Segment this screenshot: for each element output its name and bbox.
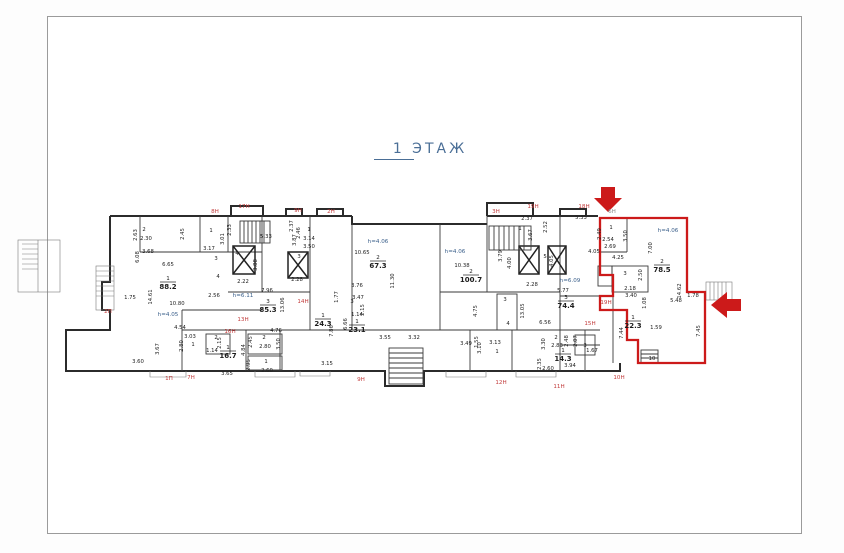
dimension-label: 2.95 <box>246 359 252 371</box>
dimension-label: 4.76 <box>270 328 282 334</box>
svg-text:100.7: 100.7 <box>460 276 482 284</box>
dimension-label: 2.45 <box>180 228 186 240</box>
dimension-label: 5.77 <box>557 288 569 294</box>
dimension-label: 3.76 <box>351 283 363 289</box>
dimension-label: 2.50 <box>638 268 644 280</box>
svg-text:1: 1 <box>355 319 359 325</box>
dimension-label: 3.15 <box>321 361 333 367</box>
dimension-label: 2.35 <box>537 358 543 370</box>
dimension-label: 2.60 <box>542 366 554 372</box>
dimension-label: 2.48 <box>564 334 570 346</box>
dimension-label: 1.75 <box>124 295 136 301</box>
svg-text:16.7: 16.7 <box>219 352 236 360</box>
svg-text:22.3: 22.3 <box>624 322 641 330</box>
unit-number-label: 13Н <box>237 317 248 323</box>
dimension-label: 5.48 <box>670 298 682 304</box>
ceiling-height-label: h=4.06 <box>368 239 389 245</box>
ceiling-height-label: h=4.05 <box>158 312 179 318</box>
dimension-label: 1 <box>264 359 267 365</box>
dimension-label: 6.08 <box>135 250 141 262</box>
dimension-label: 2.54 <box>602 237 614 243</box>
left-arrow-icon <box>711 292 741 318</box>
dimension-label: 3.67 <box>155 343 161 355</box>
svg-text:23.1: 23.1 <box>348 326 365 334</box>
dimension-label: 4.25 <box>612 255 624 261</box>
dimension-label: 3.10 <box>477 341 483 353</box>
dimension-label: 3 <box>623 271 626 277</box>
dimension-label: 3.32 <box>408 335 420 341</box>
room-area-label: 2100.7 <box>460 269 482 284</box>
room-area-label: 123.1 <box>348 319 365 334</box>
dimension-label: 1 <box>495 349 498 355</box>
dimension-label: 7.45 <box>696 325 702 337</box>
dimension-label: 1.67 <box>586 348 598 354</box>
dimension-label: 4.05 <box>549 255 555 267</box>
dimension-label: 2.33 <box>227 224 233 236</box>
dimension-label: 4.75 <box>473 305 479 317</box>
dimension-label: 2.45 <box>248 336 254 348</box>
dimension-label: 1 <box>191 342 194 348</box>
dimension-label: 2.80 <box>179 339 185 351</box>
unit-number-label: 19Н <box>600 300 611 306</box>
unit-number-label: 9Н <box>294 208 302 214</box>
unit-number-label: 17Н <box>238 204 249 210</box>
dimension-label: 2.60 <box>261 368 273 374</box>
dimension-label: 3.03 <box>184 334 196 340</box>
dimension-label: 5.33 <box>260 234 272 240</box>
highlighted-unit-outline <box>600 218 705 363</box>
dimension-label: 11.30 <box>390 273 396 289</box>
unit-number-label: 11Н <box>553 384 564 390</box>
unit-number-label: 18Н <box>578 204 589 210</box>
svg-text:74.4: 74.4 <box>557 302 574 310</box>
dimension-label: 3.87 <box>292 234 298 246</box>
dimension-label: 3.17 <box>203 246 215 252</box>
dimension-label: 4.54 <box>174 325 186 331</box>
dimension-label: 3.55 <box>379 335 391 341</box>
svg-text:24.3: 24.3 <box>314 320 331 328</box>
unit-number-label: 19Н <box>527 204 538 210</box>
dimension-label: 4.00 <box>507 256 513 268</box>
dimension-label: 2.07 <box>573 335 579 347</box>
dimension-label: 10.80 <box>169 301 185 307</box>
room-area-label: 124.3 <box>314 313 331 328</box>
svg-text:88.2: 88.2 <box>159 283 176 291</box>
dimension-label: 1 <box>609 225 612 231</box>
dimension-label: 2.37 <box>521 216 533 222</box>
dimension-label: 13.06 <box>280 297 286 313</box>
unit-number-label: 12Н <box>495 380 506 386</box>
unit-number-label: 7Н <box>187 375 195 381</box>
ceiling-height-label: h=4.06 <box>445 249 466 255</box>
unit-number-label: 6Н <box>608 209 616 215</box>
dimension-label: 1.59 <box>650 325 662 331</box>
svg-text:2: 2 <box>376 255 380 261</box>
floor-plan: 8Н17Н9Н2Н3Н19Н18Н6Н1П7Н9Н12Н11Н10Н2П13Н1… <box>0 0 844 553</box>
elevator-shaft-icons <box>233 246 566 278</box>
dimension-label: 3 <box>297 254 300 260</box>
dimension-label: 2 <box>142 227 145 233</box>
dimension-label: 1.08 <box>642 296 648 308</box>
unit-number-label: 9Н <box>357 377 365 383</box>
dimension-label: 10 <box>649 356 656 362</box>
unit-number-label: 8Н <box>211 209 219 215</box>
dimension-label: 1.78 <box>687 293 699 299</box>
dimension-label: 3.88 <box>253 258 259 270</box>
dimension-label: 3 <box>214 256 217 262</box>
unit-number-label: 16Н <box>224 329 235 335</box>
dimension-label: 4 <box>506 321 510 327</box>
dimension-label: 3.50 <box>303 244 315 250</box>
unit-number-label: 2Н <box>327 209 335 215</box>
dimension-label: 3.30 <box>541 337 547 349</box>
dimension-label: 3.50 <box>276 337 282 349</box>
dimension-label: 2.69 <box>604 244 616 250</box>
scanned-sheet: 1 ЭТАЖ <box>0 0 844 553</box>
dimension-label: 4.84 <box>241 343 247 355</box>
dimension-label: 3.47 <box>352 295 364 301</box>
dimension-label: 3.67 <box>528 229 534 241</box>
dimension-label: 7.96 <box>261 288 273 294</box>
dimension-label: 2.28 <box>291 277 303 283</box>
ceiling-height-label: h=4.06 <box>658 228 679 234</box>
dimension-label: 3.68 <box>142 249 154 255</box>
dimension-label: 1 <box>209 228 212 234</box>
dimension-label: 1 <box>307 227 310 233</box>
svg-text:67.3: 67.3 <box>369 262 386 270</box>
external-structures <box>18 240 732 377</box>
dimension-label: 2.52 <box>543 221 549 233</box>
room-area-label: 385.3 <box>259 299 276 314</box>
dimension-label: 10.65 <box>354 250 369 256</box>
ceiling-height-label: h=6.09 <box>560 278 581 284</box>
svg-text:1: 1 <box>561 348 565 354</box>
dimension-label: 7.00 <box>648 241 654 253</box>
svg-text:85.3: 85.3 <box>259 306 276 314</box>
svg-text:14.3: 14.3 <box>554 355 571 363</box>
dimension-label: 2 <box>262 335 265 341</box>
room-area-label: 267.3 <box>369 255 386 270</box>
dimension-label: 3 <box>503 297 506 303</box>
dimension-label: 3.50 <box>623 229 629 241</box>
dimension-label: 3 <box>350 299 353 305</box>
dimension-label: 2.63 <box>133 229 139 241</box>
room-area-label: 188.2 <box>159 276 176 291</box>
dimension-label: 1.14 <box>206 348 218 354</box>
svg-text:2: 2 <box>469 269 473 275</box>
dimension-label: 3.65 <box>221 371 233 377</box>
dimension-label: 4 <box>216 274 220 280</box>
dimension-label: 5 <box>543 254 546 260</box>
ceiling-height-label: h=6.11 <box>233 293 254 299</box>
unit-number-label: 15Н <box>584 321 595 327</box>
dimension-label: 1.77 <box>334 291 340 303</box>
dimension-label: 14.62 <box>677 283 683 298</box>
svg-text:2: 2 <box>660 259 664 265</box>
dimension-label: 5.33 <box>575 215 587 221</box>
dimension-label: 3.40 <box>625 293 637 299</box>
dimension-label: 2.37 <box>289 220 295 232</box>
dimension-label: 4.05 <box>588 249 600 255</box>
unit-number-label: 14Н <box>297 299 308 305</box>
dimension-label: 14.61 <box>148 289 154 304</box>
dimension-label: 3.79 <box>498 250 504 262</box>
dimension-label: 2.22 <box>237 279 249 285</box>
dimension-label: 3.01 <box>220 233 226 245</box>
svg-text:3: 3 <box>564 295 568 301</box>
dimension-label: 1 <box>518 226 521 232</box>
dimension-label: 2.56 <box>208 293 220 299</box>
svg-text:3: 3 <box>266 299 270 305</box>
dimension-label: 2 <box>554 335 557 341</box>
room-area-label: 114.3 <box>554 348 571 363</box>
svg-text:1: 1 <box>631 315 635 321</box>
dimension-label: 1.14 <box>351 312 363 318</box>
unit-number-label: 1П <box>165 376 173 382</box>
room-area-label: 278.5 <box>653 259 670 274</box>
svg-text:1: 1 <box>321 313 325 319</box>
dimension-label: 3.13 <box>489 340 501 346</box>
dimension-label: 2.30 <box>140 236 152 242</box>
dimension-label: 2.18 <box>624 286 636 292</box>
dimension-label: 13.05 <box>520 303 526 318</box>
dimension-label: 10.38 <box>454 263 470 269</box>
dimension-label: 3.60 <box>132 359 144 365</box>
dimension-label: 6.56 <box>539 320 551 326</box>
dimension-label: 2.28 <box>526 282 538 288</box>
dimension-label: 3.14 <box>303 236 315 242</box>
dimension-label: 2.80 <box>259 344 271 350</box>
svg-text:1: 1 <box>166 276 170 282</box>
unit-number-label: 10Н <box>613 375 624 381</box>
svg-text:78.5: 78.5 <box>653 266 670 274</box>
dimension-label: 3.49 <box>460 341 472 347</box>
unit-number-label: 3Н <box>492 209 500 215</box>
svg-text:1: 1 <box>226 345 230 351</box>
unit-number-label: 2П <box>104 309 112 315</box>
dimension-label: 6.65 <box>162 262 174 268</box>
dimension-label: 3.94 <box>564 363 576 369</box>
